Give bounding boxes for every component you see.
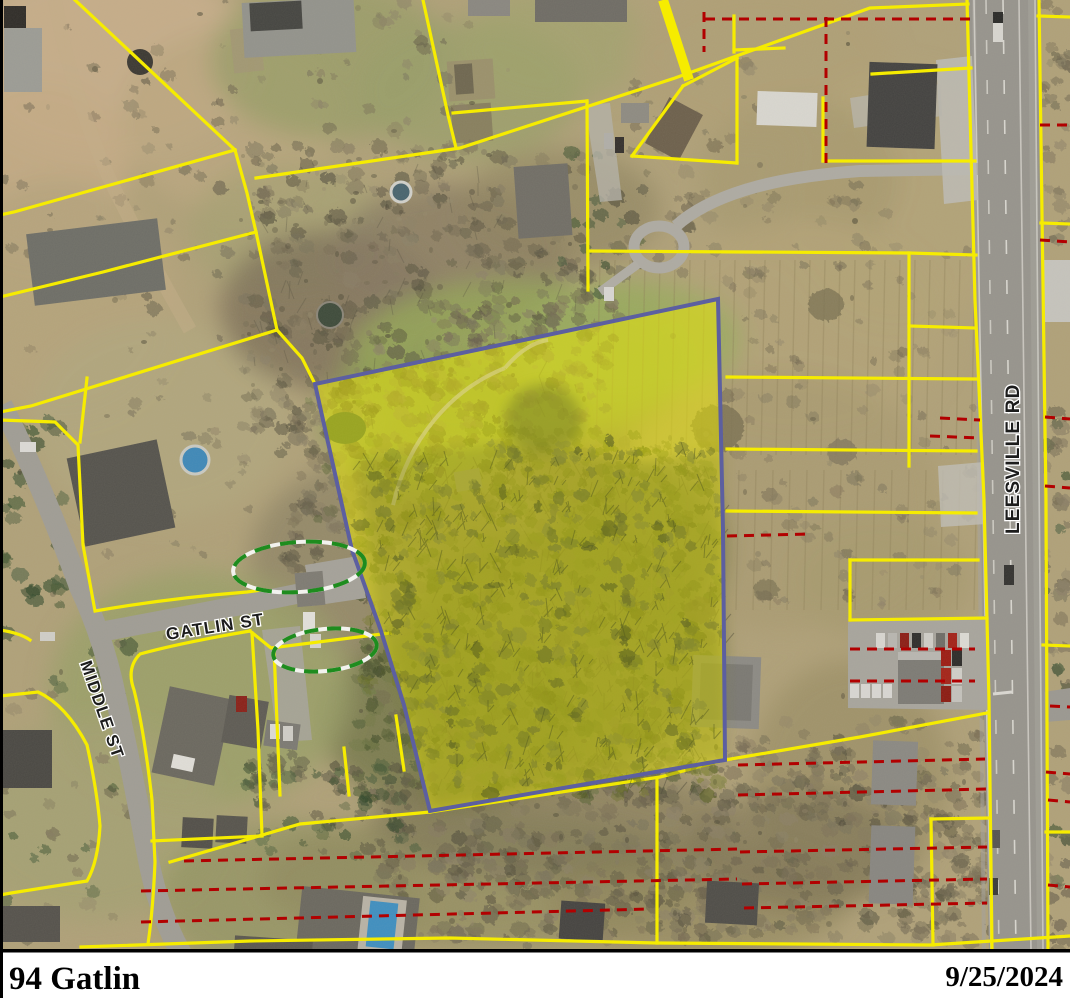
- svg-text:9/25/2024: 9/25/2024: [945, 961, 1063, 993]
- svg-text:94 Gatlin: 94 Gatlin: [9, 961, 140, 997]
- svg-text:LEESVILLE RD: LEESVILLE RD: [1003, 383, 1024, 534]
